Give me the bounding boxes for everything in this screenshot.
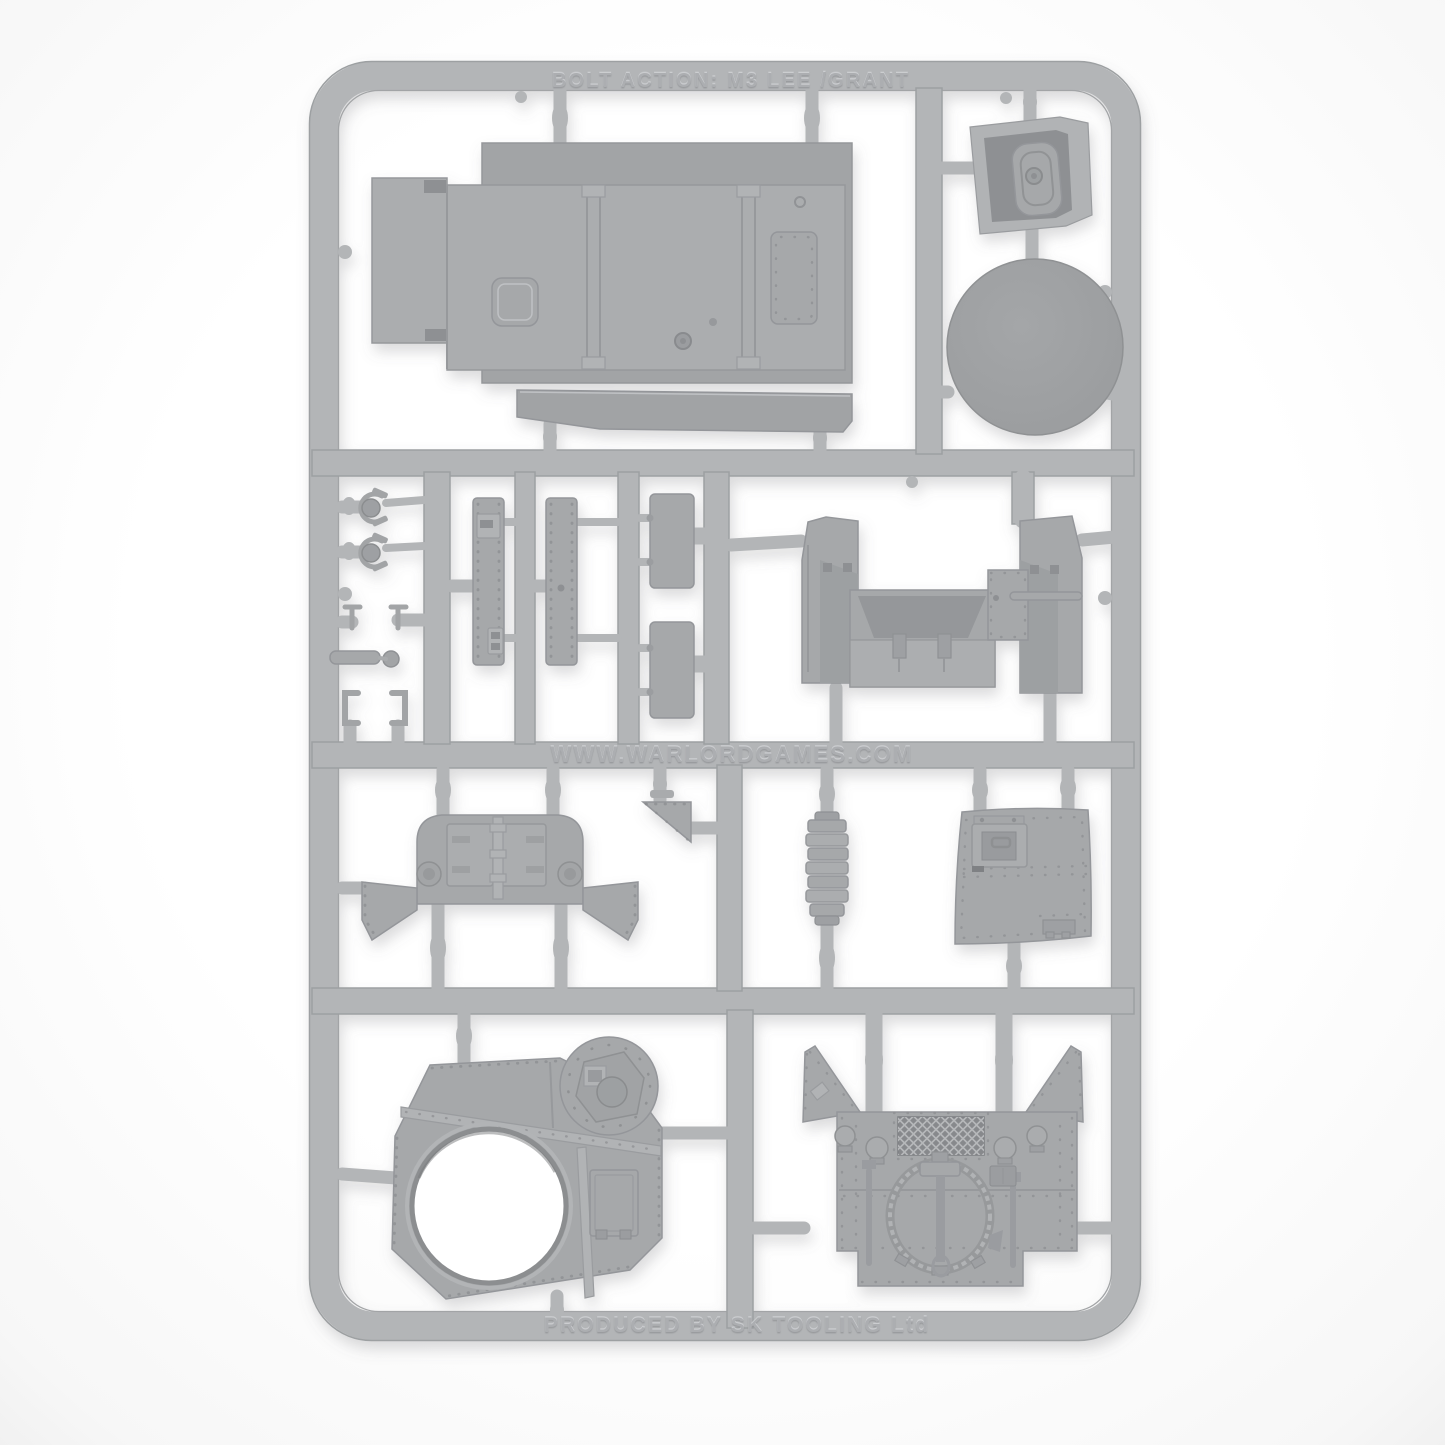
part-riveted-strip-2 [546, 498, 577, 665]
turret-door-panel [590, 1170, 638, 1236]
part-hatch-interior-tub [970, 117, 1092, 234]
part-turret-ring-disc [947, 259, 1123, 435]
part-triangular-gusset [643, 790, 691, 842]
part-access-panel-2 [647, 622, 695, 718]
deck-wing-left [803, 1046, 860, 1122]
part-exhaust-louvre-stack [806, 812, 848, 925]
sprue-photo: BOLT ACTION: M3 LEE /GRANT WWW.WARLORDGA… [0, 0, 1445, 1445]
rear-fender-left [362, 882, 417, 940]
part-shackle-bar [330, 651, 399, 667]
part-turret-top-plate [392, 1037, 662, 1299]
part-u-bracket-1 [345, 693, 358, 723]
runner-vertical-top [916, 88, 942, 454]
manufacturer-url-label: WWW.WARLORDGAMES.COM [551, 742, 914, 767]
runner-vertical-b [515, 472, 535, 744]
tub-riveted-door [988, 570, 1028, 640]
deck-wing-right [1026, 1046, 1083, 1122]
hull-hatch [492, 278, 538, 326]
producer-label: PRODUCED BY SK TOOLING Ltd [544, 1314, 931, 1337]
part-hull-roof-panel [372, 143, 852, 432]
hull-door-panel [771, 232, 817, 324]
runner-vertical-e [717, 765, 742, 991]
sprue-title-label: BOLT ACTION: M3 LEE /GRANT [552, 70, 910, 92]
product-photo: BOLT ACTION: M3 LEE /GRANT WWW.WARLORDGA… [0, 0, 1445, 1445]
part-u-bracket-2 [392, 693, 405, 723]
part-headlight-guard-1 [361, 487, 389, 527]
part-rear-plate-with-doors [362, 815, 638, 940]
part-side-hatch-plate [955, 808, 1091, 944]
part-riveted-strip-1 [473, 498, 504, 665]
part-access-panel-1 [647, 494, 695, 588]
part-rear-hull-tub [802, 516, 1082, 693]
runner-vertical-f [727, 1010, 753, 1328]
runner-vertical-a [424, 472, 450, 744]
runner-vertical-c [618, 472, 639, 744]
part-engine-deck [803, 1046, 1083, 1286]
hull-skirt-strip [517, 390, 852, 432]
rear-fender-right [583, 882, 638, 940]
runner-vertical-d [704, 472, 729, 744]
part-headlight-guard-2 [361, 532, 389, 572]
